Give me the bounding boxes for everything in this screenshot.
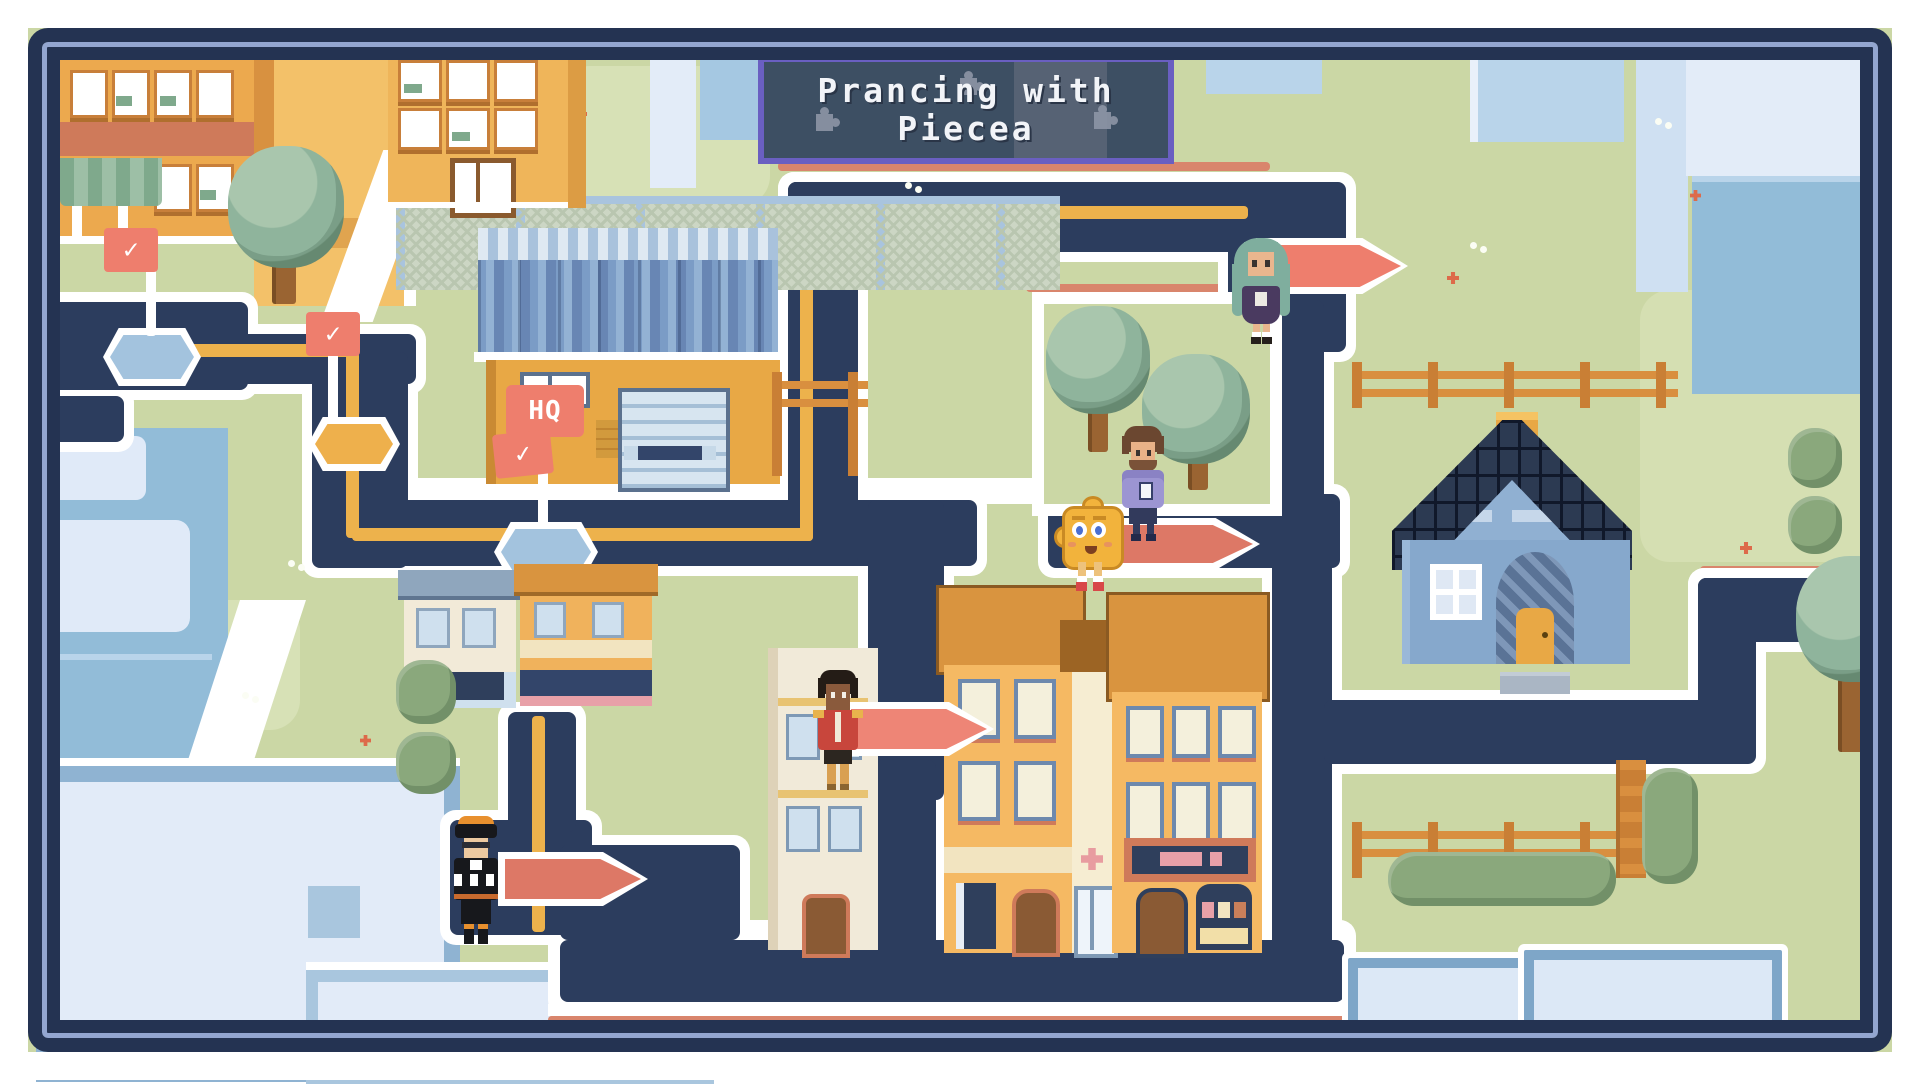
wood-fence	[1352, 362, 1678, 408]
hq-pole	[538, 470, 548, 528]
flag-pole	[328, 352, 338, 424]
road	[36, 396, 124, 442]
flower-icon	[288, 560, 295, 567]
arch-door	[1012, 889, 1060, 957]
character-red-jacket[interactable]	[810, 670, 866, 792]
tree	[1796, 556, 1912, 682]
title-line-2: Piecea	[897, 110, 1034, 148]
checkpoint-flag[interactable]: ✓	[104, 228, 158, 272]
shop-orange	[520, 576, 652, 706]
apartment-top-mid	[388, 46, 586, 208]
game-map: ✓ ✓ HQ ✓	[0, 0, 1920, 1080]
check-icon: ✓	[123, 237, 139, 263]
flag-pole	[146, 266, 156, 336]
character-green-hair-girl[interactable]	[1232, 230, 1290, 344]
bush	[1388, 852, 1616, 906]
character-purple-hoodie-man[interactable]	[1116, 426, 1170, 542]
arch-door	[1136, 888, 1188, 958]
bush	[396, 732, 456, 794]
tree	[228, 146, 344, 268]
blue-house	[1392, 412, 1632, 682]
flower-icon	[905, 182, 912, 189]
character-piecea-mascot[interactable]	[1060, 498, 1122, 596]
rooftop-column	[1636, 46, 1688, 292]
door	[802, 894, 850, 958]
flower-icon	[1655, 118, 1662, 125]
flower-icon	[242, 692, 249, 699]
road-accent	[548, 1016, 1356, 1023]
rooftop-blue	[1206, 46, 1322, 94]
tree-trunk	[1838, 672, 1864, 752]
rooftop-left-mid	[36, 428, 228, 760]
shop-sign	[1124, 838, 1256, 882]
node-left[interactable]	[103, 328, 201, 386]
bush	[396, 660, 456, 724]
hq-label: HQ	[528, 396, 561, 426]
flower-icon	[1447, 272, 1459, 284]
yard-gate	[772, 372, 868, 476]
rooftop-blue	[1692, 176, 1878, 394]
checkpoint-flag[interactable]: ✓	[306, 312, 360, 356]
flower-icon	[1470, 242, 1477, 249]
bakery-display	[1196, 884, 1252, 950]
house-window	[1430, 564, 1482, 620]
road	[1272, 494, 1332, 1002]
townhouse-mid-left	[944, 585, 1072, 953]
rooftop-pale	[1686, 46, 1878, 176]
rooftop-pale	[650, 46, 696, 188]
pharmacy-strip	[1072, 660, 1112, 953]
character-black-suit[interactable]	[446, 816, 506, 948]
bush	[1788, 428, 1842, 488]
sidewalk	[548, 1004, 1356, 1016]
pool-bottom-right	[1524, 950, 1782, 1080]
node-yellow[interactable]	[308, 417, 400, 471]
hq-check-flag: ✓	[492, 429, 554, 479]
flower-icon	[360, 735, 371, 746]
house-door	[1516, 608, 1554, 664]
bush	[1642, 768, 1698, 884]
pharmacy-cross-icon	[1081, 848, 1103, 870]
road	[1698, 578, 1756, 764]
bush	[1788, 496, 1842, 554]
tree	[1046, 306, 1150, 414]
rooftop-blue	[1470, 46, 1624, 142]
check-icon: ✓	[514, 440, 532, 467]
garage-door	[618, 388, 730, 492]
rooftop-blue	[700, 46, 762, 140]
check-icon: ✓	[325, 321, 341, 347]
road	[1324, 700, 1754, 764]
title-banner: Prancing with Piecea	[758, 56, 1174, 164]
game-title: Prancing with Piecea	[764, 62, 1168, 158]
double-doors	[450, 158, 516, 218]
pool-bottom-right	[1348, 958, 1536, 1070]
townhouse-mid-right	[1112, 592, 1262, 953]
awning	[60, 158, 162, 206]
title-line-1: Prancing with	[817, 72, 1114, 110]
